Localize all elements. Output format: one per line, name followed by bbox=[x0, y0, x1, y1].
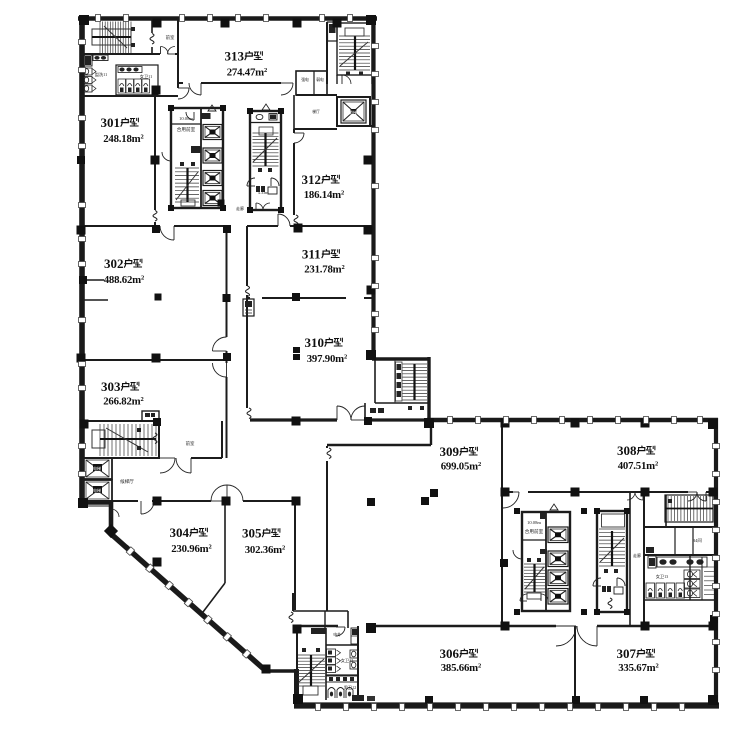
svg-text:前室: 前室 bbox=[186, 440, 195, 447]
svg-text:309: 309 bbox=[440, 444, 460, 459]
svg-text:312: 312 bbox=[302, 172, 322, 187]
svg-text:311: 311 bbox=[302, 247, 321, 262]
svg-text:303: 303 bbox=[101, 379, 121, 394]
svg-text:699.05m2: 699.05m2 bbox=[441, 461, 481, 473]
svg-text:304: 304 bbox=[170, 525, 190, 540]
svg-text:合用前室: 合用前室 bbox=[525, 528, 544, 535]
svg-text:电梯: 电梯 bbox=[93, 487, 101, 493]
svg-text:186.14m2: 186.14m2 bbox=[304, 189, 344, 201]
svg-text:走廊: 走廊 bbox=[236, 205, 244, 211]
svg-text:310: 310 bbox=[305, 335, 325, 350]
svg-text:248.18m2: 248.18m2 bbox=[103, 133, 143, 145]
svg-text:B4间: B4间 bbox=[692, 537, 702, 544]
svg-text:305: 305 bbox=[242, 526, 262, 541]
svg-text:307: 307 bbox=[617, 646, 637, 661]
svg-text:电井: 电井 bbox=[333, 632, 341, 637]
svg-text:274.47m2: 274.47m2 bbox=[227, 67, 267, 79]
svg-text:弱电: 弱电 bbox=[316, 77, 324, 82]
svg-text:前室: 前室 bbox=[166, 34, 175, 41]
svg-text:385.66m2: 385.66m2 bbox=[441, 662, 481, 674]
svg-text:306: 306 bbox=[440, 646, 460, 661]
svg-text:女卫11: 女卫11 bbox=[140, 73, 152, 80]
svg-text:397.90m2: 397.90m2 bbox=[307, 353, 347, 365]
svg-text:230.96m2: 230.96m2 bbox=[171, 543, 211, 555]
svg-text:266.82m2: 266.82m2 bbox=[103, 396, 143, 408]
svg-text:梯厅: 梯厅 bbox=[312, 109, 320, 114]
svg-text:女卫13: 女卫13 bbox=[656, 573, 669, 580]
svg-text:10.08m: 10.08m bbox=[179, 116, 193, 121]
svg-text:302.36m2: 302.36m2 bbox=[245, 544, 285, 556]
svg-text:231.78m2: 231.78m2 bbox=[304, 264, 344, 276]
svg-text:女卫12: 女卫12 bbox=[341, 657, 354, 664]
svg-text:10.08m: 10.08m bbox=[527, 520, 541, 525]
svg-text:盥洗11: 盥洗11 bbox=[95, 71, 107, 78]
svg-text:488.62m2: 488.62m2 bbox=[104, 274, 144, 286]
svg-text:候梯厅: 候梯厅 bbox=[120, 478, 134, 485]
svg-text:407.51m2: 407.51m2 bbox=[618, 460, 658, 472]
svg-text:335.67m2: 335.67m2 bbox=[618, 662, 658, 674]
svg-text:308: 308 bbox=[617, 443, 637, 458]
svg-text:313: 313 bbox=[225, 49, 245, 64]
svg-text:302: 302 bbox=[104, 256, 124, 271]
svg-text:301: 301 bbox=[101, 115, 121, 130]
svg-text:走廊: 走廊 bbox=[633, 552, 641, 558]
svg-text:合用前室: 合用前室 bbox=[177, 126, 196, 133]
svg-text:4.33m: 4.33m bbox=[258, 190, 269, 195]
svg-text:强电: 强电 bbox=[301, 77, 309, 82]
svg-text:消梯: 消梯 bbox=[349, 109, 357, 115]
svg-text:电梯: 电梯 bbox=[93, 465, 101, 471]
